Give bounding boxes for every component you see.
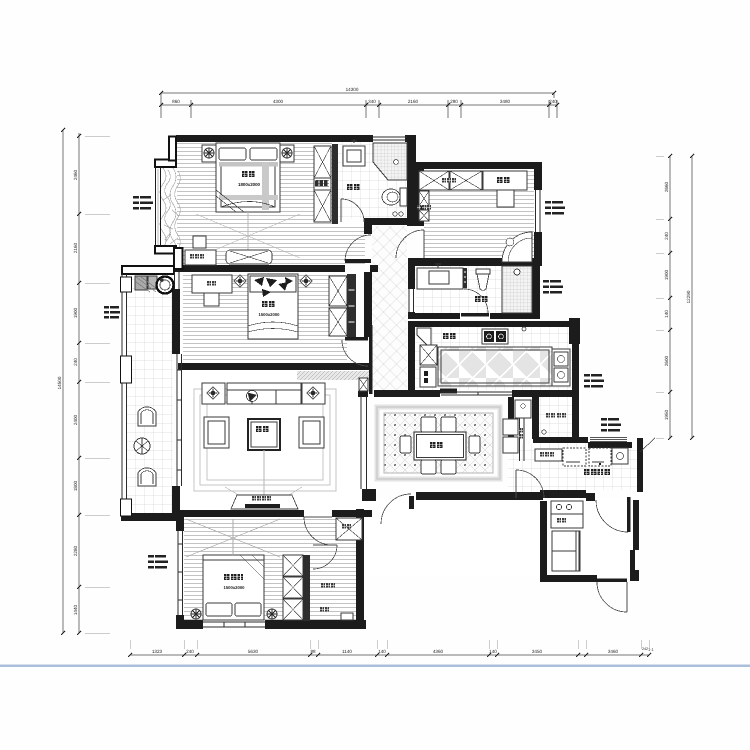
svg-text:1500x2000: 1500x2000 (224, 585, 246, 590)
svg-text:1800: 1800 (73, 480, 78, 491)
svg-text:3480: 3480 (500, 99, 511, 104)
svg-text:280: 280 (450, 99, 458, 104)
svg-text:2160: 2160 (408, 99, 419, 104)
svg-text:14300: 14300 (346, 87, 359, 92)
svg-text:1800x2000: 1800x2000 (238, 182, 261, 187)
svg-text:2280: 2280 (73, 545, 78, 556)
svg-text:2400: 2400 (73, 414, 78, 425)
svg-text:1900: 1900 (664, 269, 669, 280)
svg-text:1-1: 1-1 (648, 647, 655, 652)
svg-text:240: 240 (186, 649, 194, 654)
svg-text:140: 140 (378, 649, 386, 654)
svg-text:4360: 4360 (433, 649, 444, 654)
svg-text:340: 340 (368, 99, 376, 104)
svg-text:240: 240 (73, 358, 78, 366)
svg-text:1500x2000: 1500x2000 (259, 312, 281, 317)
svg-text:3450: 3450 (532, 649, 543, 654)
svg-text:240: 240 (549, 99, 557, 104)
svg-text:860: 860 (172, 99, 180, 104)
svg-text:2600: 2600 (664, 355, 669, 366)
svg-text:3460: 3460 (608, 649, 619, 654)
svg-text:1323: 1323 (152, 649, 163, 654)
svg-text:12290: 12290 (686, 290, 691, 303)
svg-text:4300: 4300 (273, 99, 284, 104)
svg-text:140: 140 (664, 310, 669, 318)
svg-text:2660: 2660 (664, 181, 669, 192)
svg-text:2460: 2460 (73, 169, 78, 180)
svg-text:1950: 1950 (664, 409, 669, 420)
svg-text:1140: 1140 (342, 649, 352, 654)
svg-text:14500: 14500 (57, 376, 62, 389)
svg-text:88: 88 (310, 649, 316, 654)
svg-text:1900: 1900 (73, 307, 78, 318)
svg-text:140: 140 (489, 649, 497, 654)
svg-text:5630: 5630 (248, 649, 259, 654)
svg-text:2160: 2160 (73, 242, 78, 253)
svg-text:1440: 1440 (73, 604, 78, 615)
svg-text:240: 240 (664, 232, 669, 240)
